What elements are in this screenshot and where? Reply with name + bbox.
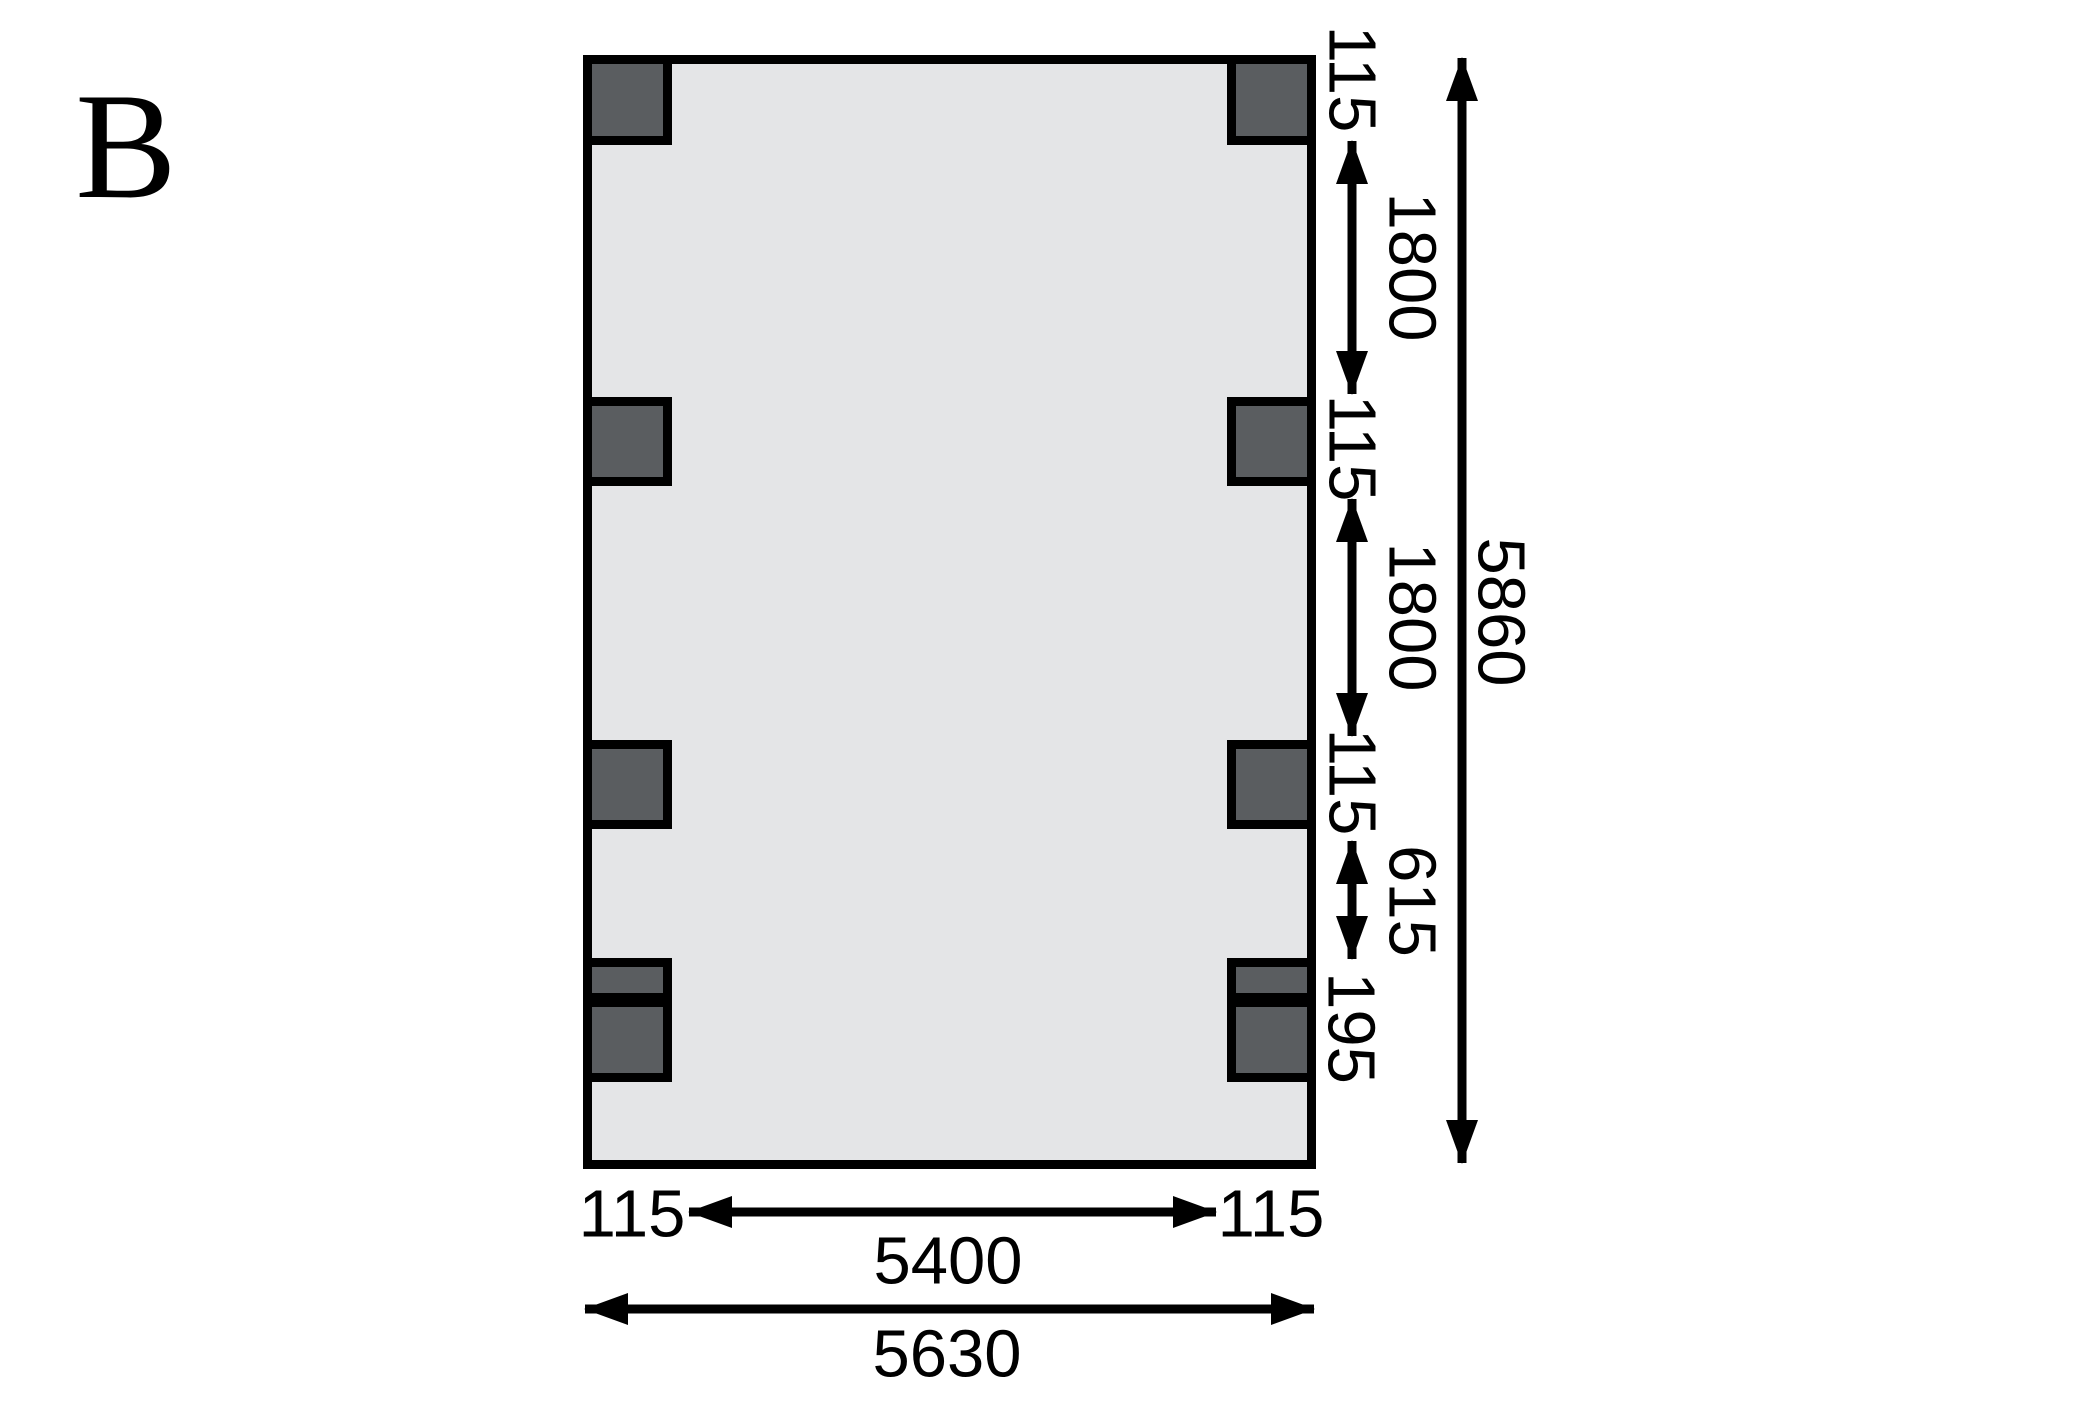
dim-label-post-width-top: 115 xyxy=(1319,26,1386,133)
dim-label-inner-span: 5400 xyxy=(873,1228,1022,1295)
post-mid-left xyxy=(583,397,672,486)
dim-label-anchor-depth: 195 xyxy=(1318,972,1385,1084)
dim-label-bay-upper: 1800 xyxy=(1379,192,1446,341)
dim-label-overall-width: 5630 xyxy=(872,1321,1021,1388)
post-top-left xyxy=(583,55,672,145)
post-bottom-right-divider xyxy=(1236,993,1307,1007)
dim-label-overall-height: 5860 xyxy=(1468,537,1535,686)
post-bottom-left xyxy=(583,958,672,1082)
post-bottom-right xyxy=(1227,958,1316,1082)
dim-label-post-width-lower: 115 xyxy=(1319,729,1386,836)
post-bottom-left-upper-segment xyxy=(592,967,663,993)
post-bottom-right-upper-segment xyxy=(1236,967,1307,993)
dim-label-bottom-right-post: 115 xyxy=(1218,1181,1325,1248)
figure-letter: B xyxy=(75,70,176,222)
post-top-right xyxy=(1227,55,1316,145)
post-mid-right xyxy=(1227,397,1316,486)
post-bottom-left-lower-segment xyxy=(592,1007,663,1073)
post-lower-left xyxy=(583,740,672,829)
plan-canvas: B 115 1800 115 1800 115 615 195 xyxy=(0,0,2100,1406)
dim-label-bay-middle: 1800 xyxy=(1379,542,1446,691)
dim-label-bay-lower: 615 xyxy=(1379,845,1446,957)
post-bottom-left-divider xyxy=(592,993,663,1007)
dim-label-post-width-mid: 115 xyxy=(1319,395,1386,502)
dim-label-bottom-left-post: 115 xyxy=(579,1181,686,1248)
post-lower-right xyxy=(1227,740,1316,829)
floor-slab xyxy=(583,55,1316,1169)
post-bottom-right-lower-segment xyxy=(1236,1007,1307,1073)
